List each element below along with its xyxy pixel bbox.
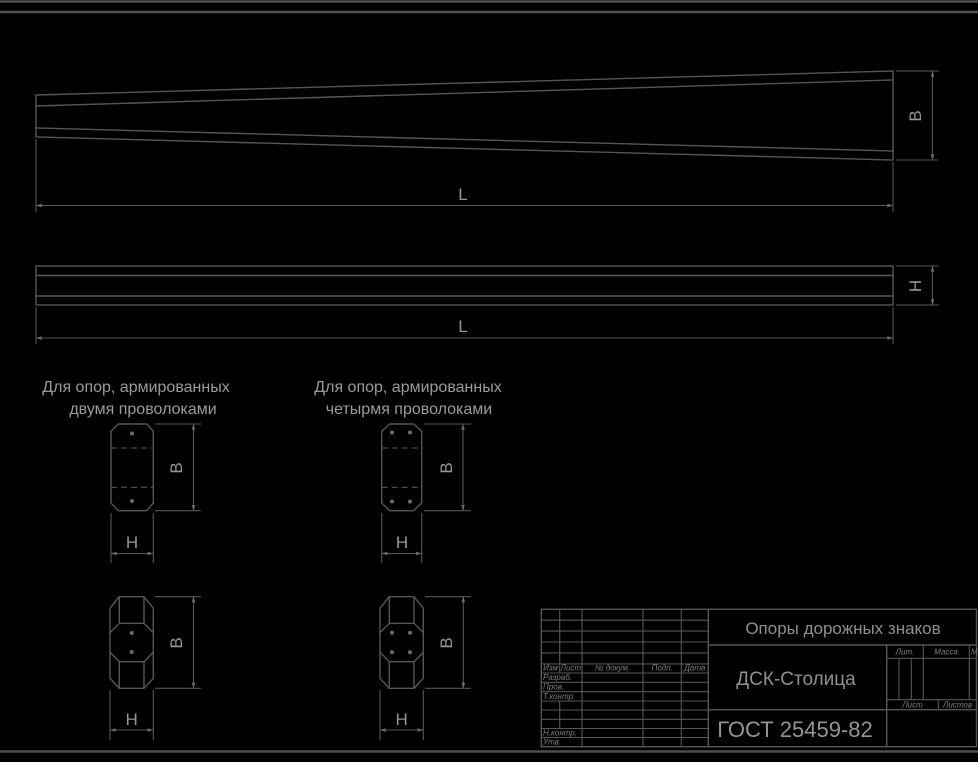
heading-line-1: Для опор, армированных bbox=[42, 379, 229, 396]
support-plan-view bbox=[36, 266, 893, 305]
plan-view-height-dimension: H bbox=[896, 266, 939, 305]
col-izm: Изм bbox=[543, 664, 558, 673]
dim-label-B: B bbox=[167, 637, 186, 648]
col-list: Лист bbox=[559, 664, 581, 673]
lit-label: Лит. bbox=[895, 648, 915, 657]
dim-label-H: H bbox=[396, 710, 408, 729]
drawing-sheet: B L H L Для опор, армированных двумя про… bbox=[0, 0, 978, 762]
dim-label-H: H bbox=[126, 710, 138, 729]
col-docnum: № докум. bbox=[595, 664, 630, 673]
support-side-view bbox=[36, 71, 893, 160]
scale-label: Масштаб bbox=[971, 648, 978, 657]
heading-line-1: Для опор, армированных bbox=[314, 379, 501, 396]
sheet-label: Лист bbox=[901, 700, 923, 709]
row-razrab: Разраб. bbox=[543, 673, 572, 682]
dim-label-B: B bbox=[437, 462, 456, 473]
row-prov: Пров. bbox=[543, 683, 564, 692]
document-title: Опоры дорожных знаков bbox=[745, 619, 940, 638]
dim-label-H: H bbox=[396, 533, 408, 552]
standard-number: ГОСТ 25459-82 bbox=[717, 717, 872, 742]
dim-label-B: B bbox=[437, 637, 456, 648]
four-wire-heading: Для опор, армированных четырмя проволока… bbox=[314, 379, 501, 418]
title-block: Изм Лист № докум. Подп. Дата Разраб. Про… bbox=[541, 609, 978, 746]
row-nkontr: Н.контр. bbox=[543, 729, 577, 738]
col-podp: Подп. bbox=[652, 664, 673, 673]
dim-label-H: H bbox=[906, 280, 925, 292]
cross-section-two-wire-flat: B H bbox=[111, 424, 201, 563]
row-utv: Утв. bbox=[542, 738, 561, 747]
row-tkontr: Т.контр. bbox=[543, 692, 575, 701]
two-wire-heading: Для опор, армированных двумя проволоками bbox=[42, 379, 229, 418]
side-view-length-dimension: L bbox=[36, 139, 893, 212]
dim-label-L: L bbox=[458, 185, 467, 204]
sheets-label: Листов bbox=[942, 700, 972, 709]
cross-section-two-wire-octagonal: B H bbox=[110, 597, 201, 740]
heading-line-2: четырмя проволоками bbox=[326, 401, 492, 418]
col-data: Дата bbox=[683, 664, 706, 673]
sheet-frame bbox=[0, 2, 978, 752]
cross-section-four-wire-octagonal: B H bbox=[380, 597, 471, 740]
plan-view-length-dimension: L bbox=[36, 307, 893, 344]
side-view-width-dimension: B bbox=[896, 71, 939, 160]
heading-line-2: двумя проволоками bbox=[69, 401, 216, 418]
dim-label-B: B bbox=[906, 110, 925, 121]
gost-drawing: B L H L Для опор, армированных двумя про… bbox=[0, 0, 978, 762]
mass-label: Масса bbox=[934, 648, 958, 657]
dim-label-H: H bbox=[126, 533, 138, 552]
dim-label-B: B bbox=[167, 462, 186, 473]
organization-name: ДСК-Столица bbox=[736, 669, 856, 690]
cross-section-four-wire-flat: B H bbox=[382, 424, 471, 563]
dim-label-L: L bbox=[458, 317, 467, 336]
